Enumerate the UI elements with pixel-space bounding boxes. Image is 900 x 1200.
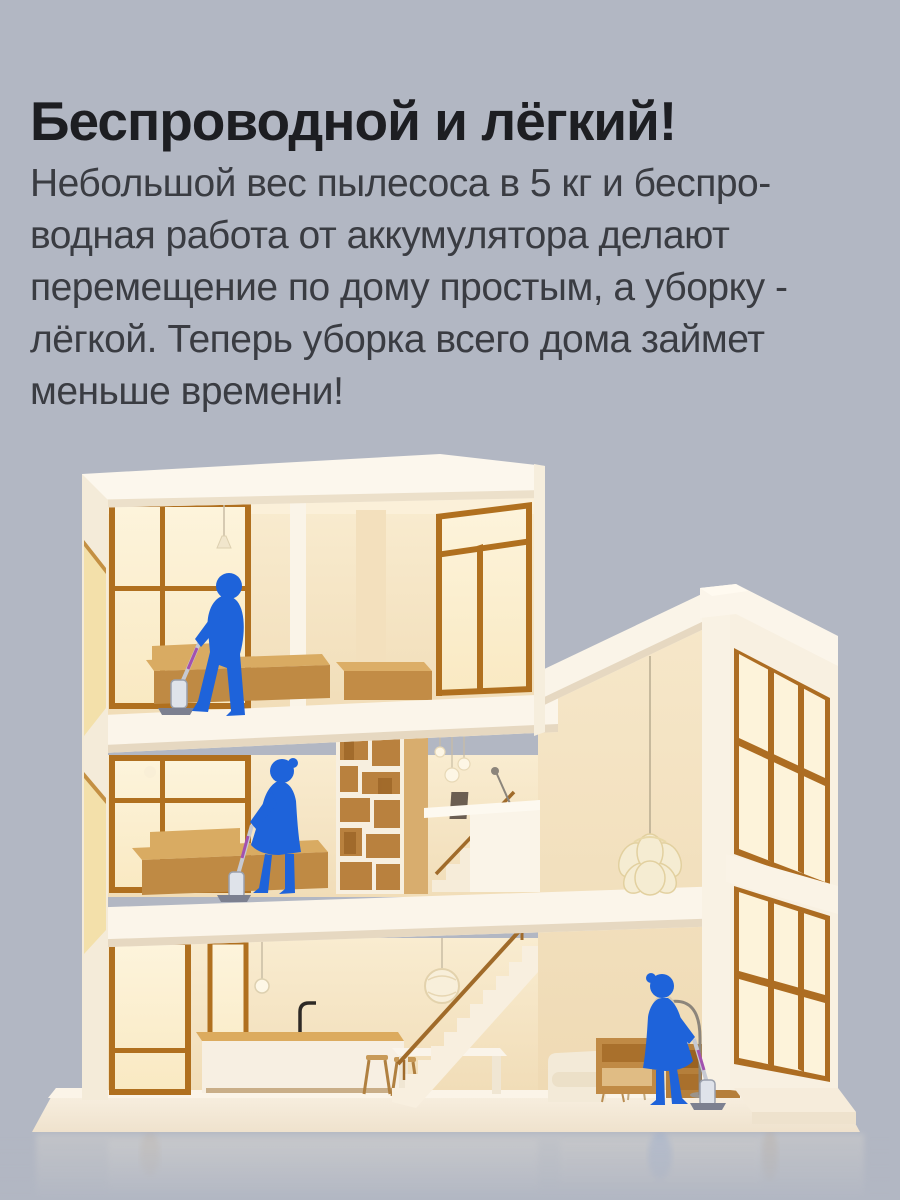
promo-banner: Беспроводной и лёгкий! Небольшой вес пыл…: [0, 0, 900, 1200]
house-illustration: [0, 440, 900, 1200]
description-line: перемещение по дому простым, а уборку -: [30, 262, 880, 314]
wall-lamp-icon: [144, 766, 156, 778]
page-title: Беспроводной и лёгкий!: [30, 91, 870, 151]
top-floor-right-window-icon: [436, 502, 532, 696]
cutaway-house-svg: [0, 440, 900, 1200]
bookshelf: [336, 732, 428, 894]
description-line: Небольшой вес пылесоса в 5 кг и беспро-: [30, 158, 880, 210]
description-line: лёгкой. Теперь уборка всего дома займет: [30, 314, 880, 366]
wood-chest: [336, 662, 432, 700]
description-line: водная работа от аккумулятора делают: [30, 210, 880, 262]
description-line: меньше времени!: [30, 366, 880, 418]
right-wing-lower-window-icon: [734, 886, 830, 1082]
description-paragraph: Небольшой вес пылесоса в 5 кг и беспро- …: [30, 158, 880, 418]
porch-step: [734, 1088, 856, 1124]
floor-reflection: [0, 1130, 900, 1200]
doorway: [356, 510, 386, 672]
